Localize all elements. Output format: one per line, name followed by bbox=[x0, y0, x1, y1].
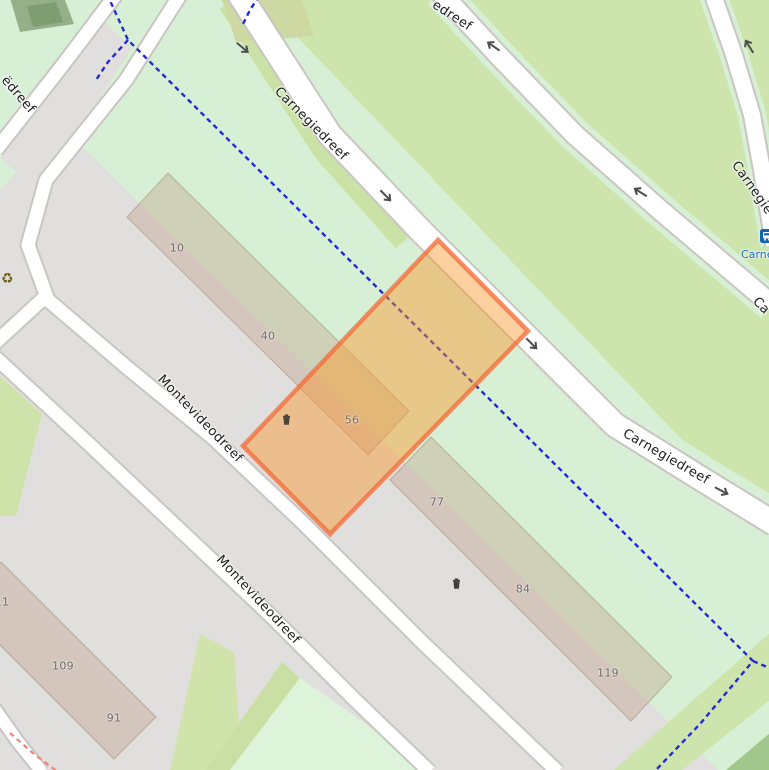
bus-stop-icon[interactable] bbox=[760, 229, 769, 243]
map-canvas bbox=[0, 0, 769, 770]
map-viewport[interactable]: Carnegiedreef edreef Carnegiedreef Carne… bbox=[0, 0, 769, 770]
